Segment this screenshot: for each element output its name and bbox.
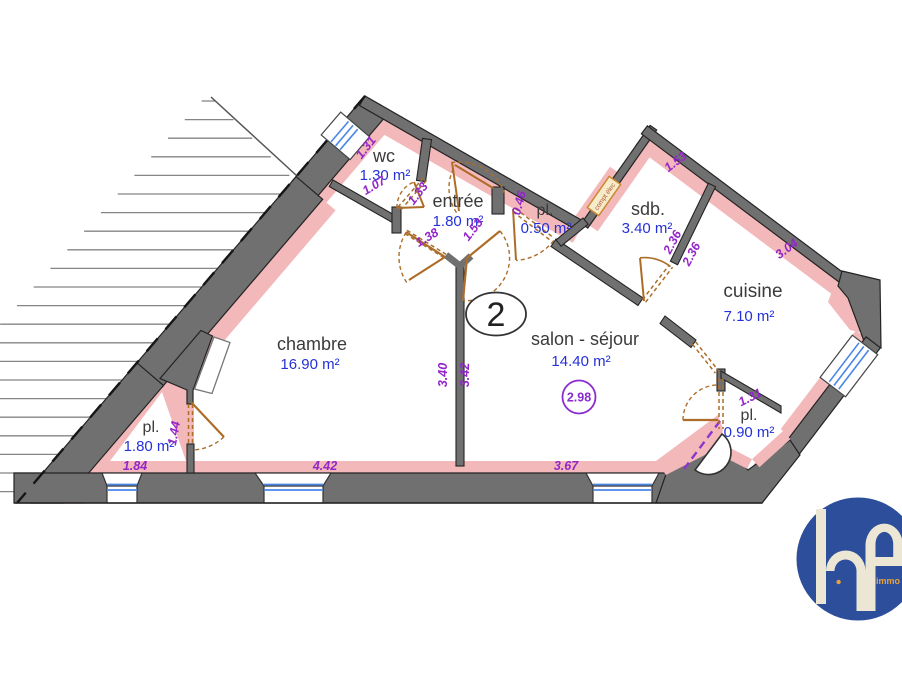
svg-text:7.10 m²: 7.10 m² [724,308,775,325]
svg-text:cuisine: cuisine [723,281,782,302]
svg-text:3.67: 3.67 [554,459,579,473]
svg-text:2.98: 2.98 [567,391,591,405]
svg-text:3.42: 3.42 [458,363,472,387]
svg-text:14.40 m²: 14.40 m² [551,353,610,370]
svg-text:chambre: chambre [277,334,347,354]
svg-text:pl.: pl. [537,202,554,219]
svg-text:1.84: 1.84 [123,459,147,473]
svg-text:2: 2 [487,296,506,334]
svg-text:entrée: entrée [432,191,483,211]
svg-text:16.90 m²: 16.90 m² [280,356,339,373]
svg-text:3.40 m²: 3.40 m² [622,220,673,237]
svg-text:0.90 m²: 0.90 m² [724,424,775,441]
svg-text:0.50 m²: 0.50 m² [521,220,572,237]
svg-text:3.40: 3.40 [436,363,450,387]
svg-text:sdb.: sdb. [631,199,665,219]
svg-text:pl.: pl. [741,407,758,424]
svg-text:4.42: 4.42 [312,459,337,473]
svg-text:wc: wc [372,146,395,166]
svg-text:immo: immo [876,576,901,586]
svg-text:salon - séjour: salon - séjour [531,329,639,349]
svg-text:pl.: pl. [143,419,160,436]
